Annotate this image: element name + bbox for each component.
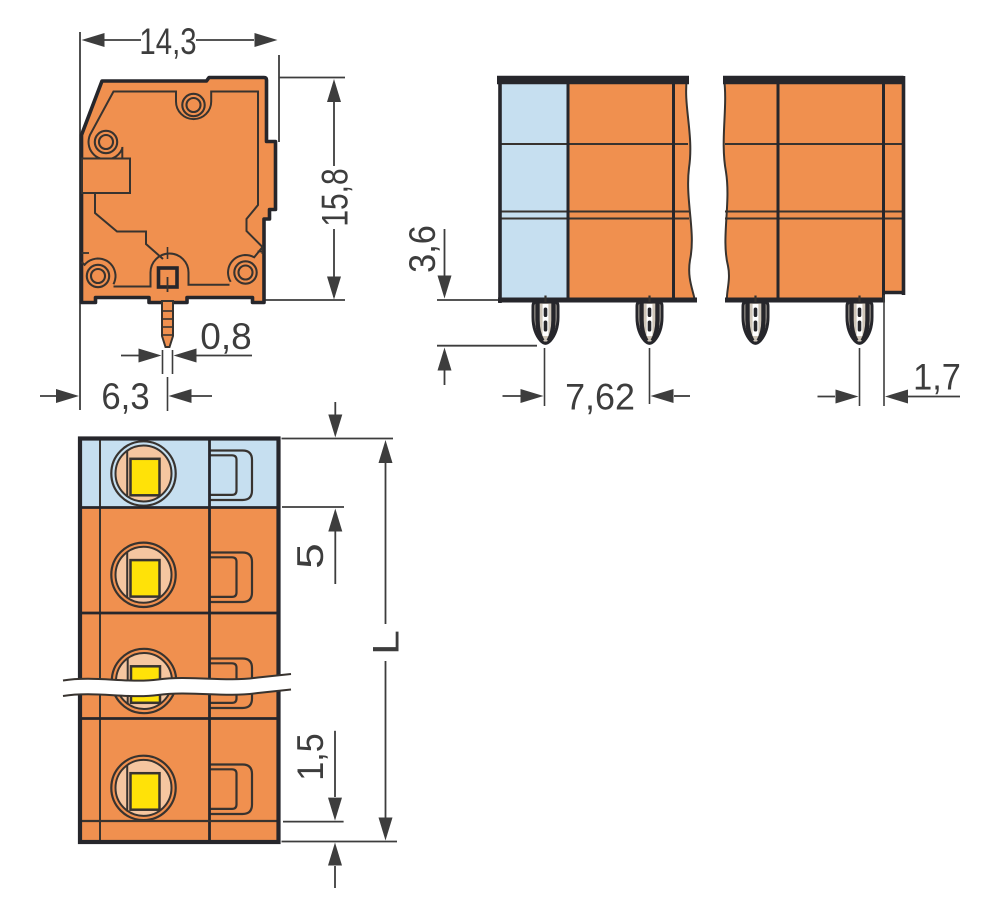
svg-text:3,6: 3,6 (402, 225, 443, 273)
svg-text:1,7: 1,7 (913, 356, 961, 397)
svg-text:14,3: 14,3 (139, 22, 196, 63)
svg-text:6,3: 6,3 (101, 376, 149, 417)
svg-text:5: 5 (290, 543, 332, 569)
svg-text:0,8: 0,8 (200, 316, 251, 357)
svg-text:L: L (365, 630, 407, 655)
svg-text:1,5: 1,5 (290, 733, 332, 780)
svg-text:7,62: 7,62 (565, 376, 635, 418)
svg-text:15,8: 15,8 (316, 168, 357, 226)
